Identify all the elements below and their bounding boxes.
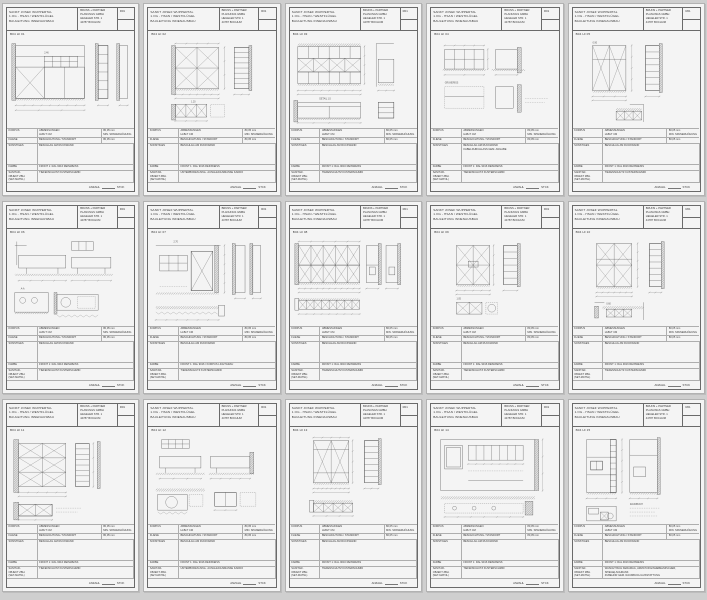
korpus-value: 80,05 mm MIN. SPANERHÖHUNG — [525, 524, 558, 533]
spec-row-korpus: KORPUS ABMESSUNGEN HxBxT CM 80,05 mm MIN… — [7, 326, 134, 335]
title-project-block: SANKT JOSEF WUPPERTAL 1.OG - HSAN / WEST… — [573, 404, 643, 426]
sonstiges-label: SONSTIGES — [148, 341, 178, 362]
sanitaer-content: TIEFENSCHUTZ KÜSTERSCHMID — [603, 368, 700, 381]
title-project-block: SANKT JOSEF WUPPERTAL 1.OG - HSAN / WEST… — [7, 404, 77, 426]
stck-label: STCK — [683, 581, 690, 585]
title-firm-block: BRUNS + PARTNER PLANUNGS GMBH HEGELER ST… — [643, 8, 683, 30]
drawing-sheet[interactable]: SANKT JOSEF WUPPERTAL 1.OG - HSAN / WEST… — [285, 201, 422, 394]
spec-row-sanitaer: SANITÄR- OBJEKT ZBH. (SET-MATNL) WASCHTI… — [573, 566, 700, 579]
revision-label: R01 — [259, 206, 276, 217]
project-scope: BAULEITUNG INNENAUSBAU — [9, 19, 75, 24]
sonstiges-content: BESCHLAG AM RÜCKWAND — [603, 539, 700, 560]
drawing-sheet[interactable]: SANKT JOSEF WUPPERTAL 1.OG - HSAN / WEST… — [2, 201, 139, 394]
korpus-value: 80,05 mm MIN. SPANERHÖHUNG — [384, 128, 417, 137]
sanitaer-content: TIEFENSCHUTZ KÜSTERSCHMID — [320, 368, 417, 381]
spec-row-sanitaer: SANITÄR- OBJEKT ZBH. (SET-MATNL) TIEFENS… — [290, 566, 417, 579]
project-scope: BAULEITUNG INNENAUSBAU — [433, 415, 499, 420]
korpus-content: ABMESSUNGEN HxBxT CM — [320, 326, 384, 335]
sheet-frame: SANKT JOSEF WUPPERTAL 1.OG - HSAN / WEST… — [430, 7, 559, 192]
stck-label: STCK — [117, 185, 124, 189]
firm-city: 44787 BOCHUM — [646, 417, 682, 421]
revision-box: R01 — [682, 404, 700, 426]
revision-box: R01 — [117, 404, 135, 426]
project-scope: BAULEITUNG INNENAUSBAU — [150, 217, 216, 222]
spec-row-sonstiges: SONSTIGES BESCHLAG AM RÜCKWAND — [7, 341, 134, 362]
korpus-label: KORPUS — [7, 326, 37, 335]
revision-label: R01 — [683, 404, 700, 415]
elevation-drawing — [290, 236, 417, 326]
spec-table: KORPUS ABMESSUNGEN HxBxT CM 80,05 mm MIN… — [7, 524, 134, 580]
drawing-number: B04 HI 15 — [573, 427, 700, 434]
sanitaer-content: UNTERBODEN ZZGL. AUSGLEICHSMASSE KADDO — [179, 566, 276, 579]
sanitaer-content: TIEFENSCHUTZ KÜSTERSCHMID — [320, 566, 417, 579]
sheet-frame: SANKT JOSEF WUPPERTAL 1.OG - HSAN / WEST… — [430, 403, 559, 588]
sanitaer-content: UNTERBODEN ZZGL. AUSGLEICHSMASSE KADDO — [179, 170, 276, 183]
project-scope: BAULEITUNG INNENAUSBAU — [575, 217, 641, 222]
project-scope: BAULEITUNG INNENAUSBAU — [150, 19, 216, 24]
sanitaer-content: TIEFENSCHUTZ KÜSTERSCHMID — [603, 170, 700, 183]
sonstiges-label: SONSTIGES — [290, 143, 320, 164]
spec-row-sanitaer: SANITÄR- OBJEKT ZBH. (SET-MATNL) TIEFENS… — [7, 170, 134, 183]
title-firm-block: BRUNS + PARTNER PLANUNGS GMBH HEGELER ST… — [643, 206, 683, 228]
count-footer: ANZAHL STCK — [7, 579, 134, 587]
spec-table: KORPUS ABMESSUNGEN HxBxT CM 80,05 mm MIN… — [290, 128, 417, 184]
sonstiges-content: BESCHLAG AM RÜCKWAND — [320, 539, 417, 560]
korpus-content: ABMESSUNGEN HxBxT CM — [320, 524, 384, 533]
title-project-block: SANKT JOSEF WUPPERTAL 1.OG - HSAN / WEST… — [573, 8, 643, 30]
revision-divider — [259, 19, 276, 30]
elevation-drawing: 2.46 — [7, 38, 134, 128]
revision-label: R01 — [259, 8, 276, 19]
revision-divider — [683, 415, 700, 426]
sonstiges-label: SONSTIGES — [148, 539, 178, 560]
drawing-sheet[interactable]: SANKT JOSEF WUPPERTAL 1.OG - HSAN / WEST… — [285, 399, 422, 592]
count-blank — [385, 581, 398, 585]
svg-text:2.70: 2.70 — [174, 242, 179, 244]
count-footer: ANZAHL STCK — [290, 381, 417, 389]
sanitaer-label: SANITÄR- OBJEKT ZBH. (SET-MATNL) — [290, 368, 320, 381]
sanitaer-label: SANITÄR- OBJEKT ZBH. (SET-MATNL) — [290, 566, 320, 579]
spec-row-sonstiges: SONSTIGES BESCHLAG AM RÜCKWAND — [573, 341, 700, 362]
spec-row-sonstiges: SONSTIGES BESCHLAG AM RÜCKWAND — [290, 539, 417, 560]
title-firm-block: BRUNS + PARTNER PLANUNGS GMBH HEGELER ST… — [360, 206, 400, 228]
sheet-frame: SANKT JOSEF WUPPERTAL 1.OG - HSAN / WEST… — [147, 7, 276, 192]
count-footer: ANZAHL STCK — [7, 183, 134, 191]
revision-label: R01 — [401, 206, 418, 217]
sanitaer-label: SANITÄR- OBJEKT ZBH. (SET-MATNL) — [431, 566, 461, 579]
spec-row-korpus: KORPUS ABMESSUNGEN HxBxT CM 80,05 mm MIN… — [148, 128, 275, 137]
sonstiges-content: BESCHLAG AM RÜCKWAND — [603, 143, 700, 164]
revision-box: R01 — [400, 404, 418, 426]
drawing-sheet[interactable]: SANKT JOSEF WUPPERTAL 1.OG - HSAN / WEST… — [143, 201, 280, 394]
sanitaer-content: TIEFENSCHUTZ KÜSTERSCHMID — [461, 170, 558, 183]
project-scope: BAULEITUNG INNENAUSBAU — [433, 217, 499, 222]
drawing-number: B04 HI 11 — [7, 427, 134, 434]
korpus-label: KORPUS — [431, 326, 461, 335]
sheet-frame: SANKT JOSEF WUPPERTAL 1.OG - HSAN / WEST… — [572, 403, 701, 588]
title-firm-block: BRUNS + PARTNER PLANUNGS GMBH HEGELER ST… — [77, 8, 117, 30]
spec-table: KORPUS ABMESSUNGEN HxBxT CM 80,05 mm MIN… — [148, 524, 275, 580]
svg-text:RAUMBUCH: RAUMBUCH — [629, 503, 642, 506]
count-footer: ANZAHL STCK — [148, 579, 275, 587]
spec-table: KORPUS ABMESSUNGEN HxBxT CM 80,05 mm MIN… — [573, 524, 700, 580]
title-project-block: SANKT JOSEF WUPPERTAL 1.OG - HSAN / WEST… — [148, 404, 218, 426]
drawing-number: B04 HI 12 — [148, 427, 275, 434]
firm-city: 44787 BOCHUM — [363, 219, 399, 223]
korpus-content: ABMESSUNGEN HxBxT CM — [37, 524, 101, 533]
sonstiges-content: BESCHLAG AM RÜCKWAND — [461, 341, 558, 362]
count-blank — [102, 581, 115, 585]
count-blank — [668, 185, 681, 189]
title-firm-block: BRUNS + PARTNER PLANUNGS GMBH HEGELER ST… — [219, 404, 259, 426]
drawing-number: B04 HI 02 — [148, 31, 275, 38]
title-firm-block: BRUNS + PARTNER PLANUNGS GMBH HEGELER ST… — [360, 404, 400, 426]
spec-table: KORPUS ABMESSUNGEN HxBxT CM 80,05 mm MIN… — [290, 326, 417, 382]
spec-table: KORPUS ABMESSUNGEN HxBxT CM 80,05 mm MIN… — [431, 326, 558, 382]
korpus-value: 80,05 mm MIN. SPANERHÖHUNG — [101, 326, 134, 335]
drawing-number: B04 HI 07 — [148, 229, 275, 236]
korpus-content: ABMESSUNGEN HxBxT CM — [37, 128, 101, 137]
count-blank — [668, 581, 681, 585]
count-blank — [243, 185, 256, 189]
sonstiges-label: SONSTIGES — [431, 341, 461, 362]
revision-divider — [118, 19, 135, 30]
sonstiges-label: SONSTIGES — [573, 539, 603, 560]
elevation-drawing: 0.60 — [573, 236, 700, 326]
elevation-drawing: GRUNDRISS — [431, 38, 558, 128]
revision-box: R01 — [117, 8, 135, 30]
sanitaer-label: SANITÄR- OBJEKT ZBH. (SET-MATNL) — [573, 368, 603, 381]
korpus-content: ABMESSUNGEN HxBxT CM — [37, 326, 101, 335]
sonstiges-content: BESCHLAG AM RÜCKWAND — [320, 143, 417, 164]
stck-label: STCK — [400, 185, 407, 189]
sonstiges-content: BESCHLAG AM RÜCKWAND — [179, 539, 276, 560]
title-project-block: SANKT JOSEF WUPPERTAL 1.OG - HSAN / WEST… — [431, 206, 501, 228]
revision-divider — [401, 415, 418, 426]
revision-box: R01 — [258, 404, 276, 426]
sheet-frame: SANKT JOSEF WUPPERTAL 1.OG - HSAN / WEST… — [147, 205, 276, 390]
sonstiges-content: BESCHLAG AM RÜCKWAND — [603, 341, 700, 362]
project-scope: BAULEITUNG INNENAUSBAU — [9, 217, 75, 222]
korpus-content: ABMESSUNGEN HxBxT CM — [320, 128, 384, 137]
svg-text:GRUNDRISS: GRUNDRISS — [445, 83, 459, 85]
stck-label: STCK — [541, 185, 548, 189]
spec-row-korpus: KORPUS ABMESSUNGEN HxBxT CM 80,05 mm MIN… — [431, 326, 558, 335]
spec-row-korpus: KORPUS ABMESSUNGEN HxBxT CM 80,05 mm MIN… — [290, 326, 417, 335]
stck-label: STCK — [117, 383, 124, 387]
revision-divider — [683, 217, 700, 228]
sanitaer-content: TIEFENSCHUTZ KÜSTERSCHMID — [37, 566, 134, 579]
sonstiges-label: SONSTIGES — [290, 539, 320, 560]
stck-label: STCK — [258, 185, 265, 189]
spec-table: KORPUS ABMESSUNGEN HxBxT CM 80,05 mm MIN… — [7, 326, 134, 382]
svg-text:0.60: 0.60 — [606, 303, 611, 305]
drawing-sheet[interactable]: SANKT JOSEF WUPPERTAL 1.OG - HSAN / WEST… — [568, 201, 705, 394]
anzahl-label: ANZAHL — [372, 383, 383, 387]
firm-city: 44787 BOCHUM — [222, 219, 258, 223]
korpus-value: 80,05 mm MIN. SPANERHÖHUNG — [667, 326, 700, 335]
drawing-sheet[interactable]: SANKT JOSEF WUPPERTAL 1.OG - HSAN / WEST… — [2, 3, 139, 196]
spec-row-sonstiges: SONSTIGES BESCHLAG AM RÜCKWAND — [148, 143, 275, 164]
title-project-block: SANKT JOSEF WUPPERTAL 1.OG - HSAN / WEST… — [7, 8, 77, 30]
svg-text:1.05: 1.05 — [457, 298, 462, 300]
sonstiges-content: BESCHLAG AM RÜCKWAND — [320, 341, 417, 362]
count-blank — [668, 383, 681, 387]
count-footer: ANZAHL STCK — [573, 579, 700, 587]
count-blank — [243, 581, 256, 585]
count-blank — [102, 185, 115, 189]
sheet-frame: SANKT JOSEF WUPPERTAL 1.OG - HSAN / WEST… — [289, 7, 418, 192]
drawing-sheet[interactable]: SANKT JOSEF WUPPERTAL 1.OG - HSAN / WEST… — [568, 399, 705, 592]
korpus-value: 80,05 mm MIN. SPANERHÖHUNG — [525, 128, 558, 137]
count-blank — [243, 383, 256, 387]
korpus-value: 80,05 mm MIN. SPANERHÖHUNG — [243, 524, 276, 533]
sonstiges-label: SONSTIGES — [7, 143, 37, 164]
firm-city: 44787 BOCHUM — [504, 219, 540, 223]
title-block: SANKT JOSEF WUPPERTAL 1.OG - HSAN / WEST… — [290, 206, 417, 229]
anzahl-label: ANZAHL — [654, 185, 665, 189]
title-firm-block: BRUNS + PARTNER PLANUNGS GMBH HEGELER ST… — [219, 8, 259, 30]
revision-label: R01 — [542, 8, 559, 19]
spec-table: KORPUS ABMESSUNGEN HxBxT CM 80,05 mm MIN… — [290, 524, 417, 580]
firm-city: 44787 BOCHUM — [80, 219, 116, 223]
sonstiges-label: SONSTIGES — [431, 143, 461, 164]
korpus-value: 80,05 mm MIN. SPANERHÖHUNG — [384, 326, 417, 335]
anzahl-label: ANZAHL — [230, 581, 241, 585]
anzahl-label: ANZAHL — [654, 581, 665, 585]
revision-box: R01 — [258, 206, 276, 228]
korpus-value: 80,05 mm MIN. SPANERHÖHUNG — [101, 128, 134, 137]
sonstiges-content: BESCHLAG AM RÜCKWAND — [461, 539, 558, 560]
project-scope: BAULEITUNG INNENAUSBAU — [9, 415, 75, 420]
stck-label: STCK — [400, 383, 407, 387]
title-block: SANKT JOSEF WUPPERTAL 1.OG - HSAN / WEST… — [7, 206, 134, 229]
sonstiges-content: BESCHLAG AM RÜCKWAND — [179, 341, 276, 362]
firm-city: 44787 BOCHUM — [80, 21, 116, 25]
count-footer: ANZAHL STCK — [290, 579, 417, 587]
title-block: SANKT JOSEF WUPPERTAL 1.OG - HSAN / WEST… — [290, 8, 417, 31]
spec-row-sanitaer: SANITÄR- OBJEKT ZBH. (SET-MATNL) TIEFENS… — [7, 368, 134, 381]
korpus-label: KORPUS — [431, 128, 461, 137]
title-project-block: SANKT JOSEF WUPPERTAL 1.OG - HSAN / WEST… — [573, 206, 643, 228]
title-block: SANKT JOSEF WUPPERTAL 1.OG - HSAN / WEST… — [573, 206, 700, 229]
revision-box: R01 — [117, 206, 135, 228]
sheet-frame: SANKT JOSEF WUPPERTAL 1.OG - HSAN / WEST… — [572, 205, 701, 390]
title-firm-block: BRUNS + PARTNER PLANUNGS GMBH HEGELER ST… — [77, 206, 117, 228]
korpus-value: 80,05 mm MIN. SPANERHÖHUNG — [243, 326, 276, 335]
stck-label: STCK — [258, 581, 265, 585]
spec-row-sonstiges: SONSTIGES BESCHLAG AM RÜCKWAND — [290, 143, 417, 164]
firm-city: 44787 BOCHUM — [363, 417, 399, 421]
spec-row-sonstiges: SONSTIGES BESCHLAG AM RÜCKWAND — [573, 143, 700, 164]
korpus-label: KORPUS — [573, 524, 603, 533]
spec-row-korpus: KORPUS ABMESSUNGEN HxBxT CM 80,05 mm MIN… — [7, 524, 134, 533]
sanitaer-content: WASCHTISCH KERAMAG, ARMATUR EINHEBELMISC… — [603, 566, 700, 579]
spec-row-sanitaer: SANITÄR- OBJEKT ZBH. (SET-MATNL) TIEFENS… — [290, 368, 417, 381]
korpus-label: KORPUS — [290, 128, 320, 137]
korpus-content: ABMESSUNGEN HxBxT CM — [603, 524, 667, 533]
revision-divider — [542, 217, 559, 228]
count-blank — [102, 383, 115, 387]
drawing-sheet[interactable]: SANKT JOSEF WUPPERTAL 1.OG - HSAN / WEST… — [143, 3, 280, 196]
revision-label: R01 — [401, 8, 418, 19]
elevation-drawing: 2.70 — [148, 236, 275, 326]
drawing-sheet[interactable]: SANKT JOSEF WUPPERTAL 1.OG - HSAN / WEST… — [143, 399, 280, 592]
korpus-value: 80,05 mm MIN. SPANERHÖHUNG — [525, 326, 558, 335]
spec-table: KORPUS ABMESSUNGEN HxBxT CM 80,05 mm MIN… — [148, 326, 275, 382]
sonstiges-label: SONSTIGES — [148, 143, 178, 164]
anzahl-label: ANZAHL — [372, 185, 383, 189]
elevation-drawing: 1.20 — [148, 38, 275, 128]
drawing-number: B04 HI 09 — [431, 229, 558, 236]
sanitaer-content: TIEFENSCHUTZ KÜSTERSCHMID — [320, 170, 417, 183]
firm-city: 44787 BOCHUM — [504, 21, 540, 25]
korpus-label: KORPUS — [290, 326, 320, 335]
stck-label: STCK — [541, 581, 548, 585]
stck-label: STCK — [117, 581, 124, 585]
title-project-block: SANKT JOSEF WUPPERTAL 1.OG - HSAN / WEST… — [148, 206, 218, 228]
count-footer: ANZAHL STCK — [148, 381, 275, 389]
spec-row-sonstiges: SONSTIGES BESCHLAG AM RÜCKWAND — [431, 341, 558, 362]
title-project-block: SANKT JOSEF WUPPERTAL 1.OG - HSAN / WEST… — [148, 8, 218, 30]
title-block: SANKT JOSEF WUPPERTAL 1.OG - HSAN / WEST… — [573, 404, 700, 427]
revision-box: R01 — [682, 206, 700, 228]
drawing-number: B04 HI 10 — [573, 229, 700, 236]
title-block: SANKT JOSEF WUPPERTAL 1.OG - HSAN / WEST… — [7, 8, 134, 31]
drawing-sheet[interactable]: SANKT JOSEF WUPPERTAL 1.OG - HSAN / WEST… — [568, 3, 705, 196]
spec-table: KORPUS ABMESSUNGEN HxBxT CM 80,05 mm MIN… — [431, 524, 558, 580]
sonstiges-content: BESCHLAG AM RÜCKWAND — [37, 143, 134, 164]
sonstiges-content: BESCHLAG AM RÜCKWAND — [37, 341, 134, 362]
spec-row-sonstiges: SONSTIGES BESCHLAG AM RÜCKWAND — [573, 539, 700, 560]
revision-label: R01 — [683, 8, 700, 19]
sonstiges-content: BESCHLAG AM RÜCKWAND — [37, 539, 134, 560]
count-footer: ANZAHL STCK — [7, 381, 134, 389]
spec-row-korpus: KORPUS ABMESSUNGEN HxBxT CM 80,05 mm MIN… — [148, 524, 275, 533]
firm-city: 44787 BOCHUM — [222, 21, 258, 25]
drawing-sheet[interactable]: SANKT JOSEF WUPPERTAL 1.OG - HSAN / WEST… — [426, 399, 563, 592]
elevation-drawing: A-A — [7, 236, 134, 326]
sheet-frame: SANKT JOSEF WUPPERTAL 1.OG - HSAN / WEST… — [289, 205, 418, 390]
anzahl-label: ANZAHL — [513, 383, 524, 387]
project-scope: BAULEITUNG INNENAUSBAU — [150, 415, 216, 420]
anzahl-label: ANZAHL — [230, 383, 241, 387]
revision-divider — [118, 415, 135, 426]
stck-label: STCK — [258, 383, 265, 387]
revision-divider — [259, 415, 276, 426]
firm-city: 44787 BOCHUM — [363, 21, 399, 25]
stck-label: STCK — [400, 581, 407, 585]
stck-label: STCK — [541, 383, 548, 387]
elevation-drawing: 0.90 — [573, 38, 700, 128]
stck-label: STCK — [683, 383, 690, 387]
sonstiges-label: SONSTIGES — [431, 539, 461, 560]
spec-row-sonstiges: SONSTIGES BESCHLAG AM RÜCKWAND — [7, 539, 134, 560]
revision-box: R01 — [541, 8, 559, 30]
spec-row-sanitaer: SANITÄR- OBJEKT ZBH. (SET-MATNL) UNTERBO… — [148, 170, 275, 183]
svg-text:A-A: A-A — [21, 288, 25, 291]
spec-row-korpus: KORPUS ABMESSUNGEN HxBxT CM 80,05 mm MIN… — [290, 524, 417, 533]
spec-row-sanitaer: SANITÄR- OBJEKT ZBH. (SET-MATNL) TIEFENS… — [431, 170, 558, 183]
anzahl-label: ANZAHL — [513, 581, 524, 585]
project-scope: BAULEITUNG INNENAUSBAU — [292, 415, 358, 420]
sonstiges-content: BESCHLAG AM RÜCKWAND KABELDURCHLASS GEM.… — [461, 143, 558, 164]
sonstiges-label: SONSTIGES — [7, 341, 37, 362]
korpus-label: KORPUS — [7, 524, 37, 533]
drawing-sheet[interactable]: SANKT JOSEF WUPPERTAL 1.OG - HSAN / WEST… — [285, 3, 422, 196]
firm-city: 44787 BOCHUM — [504, 417, 540, 421]
title-project-block: SANKT JOSEF WUPPERTAL 1.OG - HSAN / WEST… — [431, 404, 501, 426]
sanitaer-content: TIEFENSCHUTZ KÜSTERSCHMID — [37, 170, 134, 183]
sheet-frame: SANKT JOSEF WUPPERTAL 1.OG - HSAN / WEST… — [147, 403, 276, 588]
count-blank — [526, 581, 539, 585]
revision-divider — [542, 19, 559, 30]
title-block: SANKT JOSEF WUPPERTAL 1.OG - HSAN / WEST… — [290, 404, 417, 427]
sanitaer-label: SANITÄR- OBJEKT ZBH. (SET-MATNL) — [290, 170, 320, 183]
anzahl-label: ANZAHL — [372, 581, 383, 585]
title-firm-block: BRUNS + PARTNER PLANUNGS GMBH HEGELER ST… — [501, 404, 541, 426]
elevation-drawing: DETAIL 1:5 — [290, 38, 417, 128]
sanitaer-label: SANITÄR- OBJEKT ZBH. (SET-MATNL) — [7, 170, 37, 183]
elevation-drawing — [431, 434, 558, 524]
project-scope: BAULEITUNG INNENAUSBAU — [292, 19, 358, 24]
project-scope: BAULEITUNG INNENAUSBAU — [433, 19, 499, 24]
spec-row-sonstiges: SONSTIGES BESCHLAG AM RÜCKWAND KABELDURC… — [431, 143, 558, 164]
korpus-value: 80,05 mm MIN. SPANERHÖHUNG — [243, 128, 276, 137]
revision-box: R01 — [541, 206, 559, 228]
title-firm-block: BRUNS + PARTNER PLANUNGS GMBH HEGELER ST… — [77, 404, 117, 426]
drawing-number: B04 HI 04 — [431, 31, 558, 38]
revision-box: R01 — [258, 8, 276, 30]
revision-divider — [401, 19, 418, 30]
spec-row-sanitaer: SANITÄR- OBJEKT ZBH. (SET-MATNL) TIEFENS… — [290, 170, 417, 183]
sanitaer-label: SANITÄR- OBJEKT ZBH. (SET-MATNL) — [7, 566, 37, 579]
anzahl-label: ANZAHL — [89, 581, 100, 585]
drawing-sheet[interactable]: SANKT JOSEF WUPPERTAL 1.OG - HSAN / WEST… — [2, 399, 139, 592]
title-firm-block: BRUNS + PARTNER PLANUNGS GMBH HEGELER ST… — [360, 8, 400, 30]
drawing-sheet[interactable]: SANKT JOSEF WUPPERTAL 1.OG - HSAN / WEST… — [426, 3, 563, 196]
drawing-sheet[interactable]: SANKT JOSEF WUPPERTAL 1.OG - HSAN / WEST… — [426, 201, 563, 394]
title-project-block: SANKT JOSEF WUPPERTAL 1.OG - HSAN / WEST… — [290, 206, 360, 228]
count-blank — [385, 185, 398, 189]
sanitaer-label: SANITÄR- OBJEKT ZBH. (SET-MATNL) — [148, 566, 178, 579]
revision-divider — [683, 19, 700, 30]
spec-row-sanitaer: SANITÄR- OBJEKT ZBH. (SET-MATNL) TIEFENS… — [7, 566, 134, 579]
sonstiges-content: BESCHLAG AM RÜCKWAND — [179, 143, 276, 164]
korpus-content: ABMESSUNGEN HxBxT CM — [179, 326, 243, 335]
spec-row-korpus: KORPUS ABMESSUNGEN HxBxT CM 80,05 mm MIN… — [573, 326, 700, 335]
project-scope: BAULEITUNG INNENAUSBAU — [575, 19, 641, 24]
anzahl-label: ANZAHL — [230, 185, 241, 189]
count-blank — [526, 383, 539, 387]
revision-label: R01 — [118, 206, 135, 217]
korpus-content: ABMESSUNGEN HxBxT CM — [461, 326, 525, 335]
spec-row-korpus: KORPUS ABMESSUNGEN HxBxT CM 80,05 mm MIN… — [431, 128, 558, 137]
sanitaer-label: SANITÄR- OBJEKT ZBH. (SET-MATNL) — [148, 368, 178, 381]
sanitaer-label: SANITÄR- OBJEKT ZBH. (SET-MATNL) — [431, 368, 461, 381]
sheet-frame: SANKT JOSEF WUPPERTAL 1.OG - HSAN / WEST… — [430, 205, 559, 390]
firm-city: 44787 BOCHUM — [222, 417, 258, 421]
drawing-number: B04 HI 13 — [290, 427, 417, 434]
title-project-block: SANKT JOSEF WUPPERTAL 1.OG - HSAN / WEST… — [290, 404, 360, 426]
sonstiges-label: SONSTIGES — [290, 341, 320, 362]
sheet-frame: SANKT JOSEF WUPPERTAL 1.OG - HSAN / WEST… — [6, 205, 135, 390]
korpus-content: ABMESSUNGEN HxBxT CM — [461, 128, 525, 137]
revision-divider — [118, 217, 135, 228]
sanitaer-label: SANITÄR- OBJEKT ZBH. (SET-MATNL) — [148, 170, 178, 183]
revision-label: R01 — [401, 404, 418, 415]
elevation-drawing: 1.05 — [431, 236, 558, 326]
